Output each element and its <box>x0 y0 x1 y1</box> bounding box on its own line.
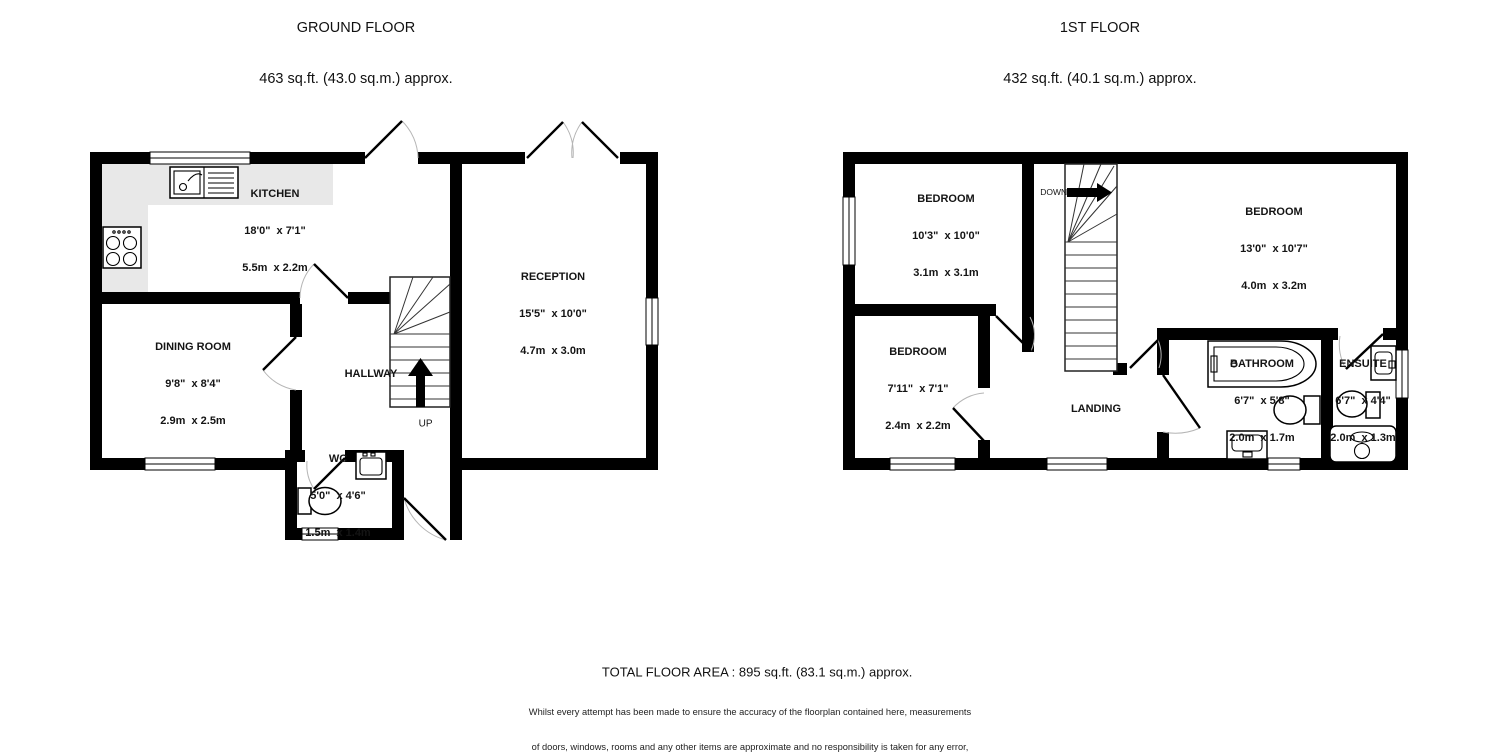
kitchen-sink-icon <box>170 167 238 198</box>
first-floor-title: 1ST FLOOR 432 sq.ft. (40.1 sq.m.) approx… <box>1003 0 1196 122</box>
door-swing <box>365 121 418 158</box>
door-swing <box>572 122 618 158</box>
stove-icon <box>103 227 141 268</box>
landing-label: LANDING <box>1071 378 1121 440</box>
stairs-up <box>390 277 450 407</box>
reception-label: RECEPTION 15'5" x 10'0" 4.7m x 3.0m <box>519 246 587 382</box>
kitchen-label: KITCHEN 18'0" x 7'1" 5.5m x 2.2m <box>242 163 307 299</box>
bedroom2-label: BEDROOM 13'0" x 10'7" 4.0m x 3.2m <box>1240 181 1308 317</box>
window <box>145 458 215 470</box>
window <box>646 298 658 345</box>
window <box>1396 350 1408 398</box>
floorplan-canvas: GROUND FLOOR 463 sq.ft. (43.0 sq.m.) app… <box>0 0 1500 754</box>
bedroom3-label: BEDROOM 7'11" x 7'1" 2.4m x 2.2m <box>885 321 950 457</box>
stairs-down <box>1065 164 1117 371</box>
floor-area: 432 sq.ft. (40.1 sq.m.) approx. <box>1003 71 1196 88</box>
window <box>1047 458 1107 470</box>
door-swing <box>1163 375 1200 433</box>
hallway-label: HALLWAY <box>345 343 398 405</box>
bedroom1-label: BEDROOM 10'3" x 10'0" 3.1m x 3.1m <box>912 168 980 304</box>
window <box>150 152 250 164</box>
door-swing <box>263 337 296 390</box>
floor-area: 463 sq.ft. (43.0 sq.m.) approx. <box>259 71 452 88</box>
disclaimer-line: of doors, windows, rooms and any other i… <box>526 742 973 754</box>
window <box>843 197 855 265</box>
door-swing <box>527 122 573 158</box>
floor-title: 1ST FLOOR <box>1003 20 1196 37</box>
floor-title: GROUND FLOOR <box>259 20 452 37</box>
ground-floor-title: GROUND FLOOR 463 sq.ft. (43.0 sq.m.) app… <box>259 0 452 122</box>
disclaimer-line: Whilst every attempt has been made to en… <box>526 707 973 719</box>
up-label: UP <box>407 408 432 441</box>
door-swing <box>953 393 984 441</box>
window <box>890 458 955 470</box>
down-label: DOWN <box>1031 177 1067 207</box>
door-swing <box>1130 340 1161 368</box>
ensuite-label: ENSUITE 6'7" x 4'4" 2.0m x 1.3m <box>1330 333 1395 469</box>
bathroom-label: BATHROOM 6'7" x 5'8" 2.0m x 1.7m <box>1229 333 1294 469</box>
dining-room-label: DINING ROOM 9'8" x 8'4" 2.9m x 2.5m <box>155 316 231 452</box>
disclaimer: Whilst every attempt has been made to en… <box>526 684 973 754</box>
wc-label: WC 5'0" x 4'6" 1.5m x 1.4m <box>305 428 370 564</box>
door-swing <box>404 498 446 540</box>
